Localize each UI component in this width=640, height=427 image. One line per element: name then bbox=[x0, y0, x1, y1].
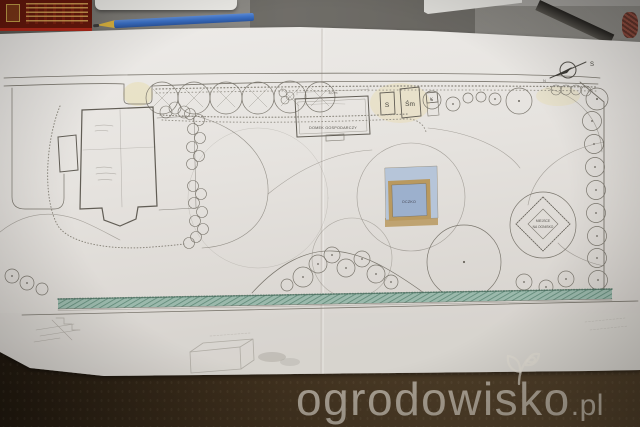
pond: OCZKO bbox=[385, 166, 438, 227]
tap-label: K bbox=[430, 97, 433, 102]
bonfire-label-2: NA OGNISKO bbox=[533, 225, 554, 229]
watermark: ogrodowisko.pl bbox=[296, 376, 604, 422]
compass-s-label: S bbox=[590, 62, 594, 68]
shed-label: DOMEK GOSPODARCZY bbox=[309, 126, 357, 130]
paper-fold-tint bbox=[0, 313, 640, 377]
bonfire-label-1: MIEJSCE bbox=[536, 219, 551, 223]
shed-dimension: 8,0 m bbox=[329, 91, 338, 95]
watermark-brand: ogrodowisko bbox=[296, 373, 571, 425]
bin-s-label: S bbox=[385, 102, 390, 109]
pond-label: OCZKO bbox=[402, 200, 416, 204]
plan-drawing: 8,0 m DOMEK GOSPODARCZY S Śm K bbox=[0, 0, 640, 427]
watermark-tld: .pl bbox=[571, 389, 604, 422]
photo-of-garden-plan: 8,0 m DOMEK GOSPODARCZY S Śm K bbox=[0, 0, 640, 427]
compass-n-label: N bbox=[543, 78, 546, 83]
bin-sm-label: Śm bbox=[405, 99, 415, 108]
